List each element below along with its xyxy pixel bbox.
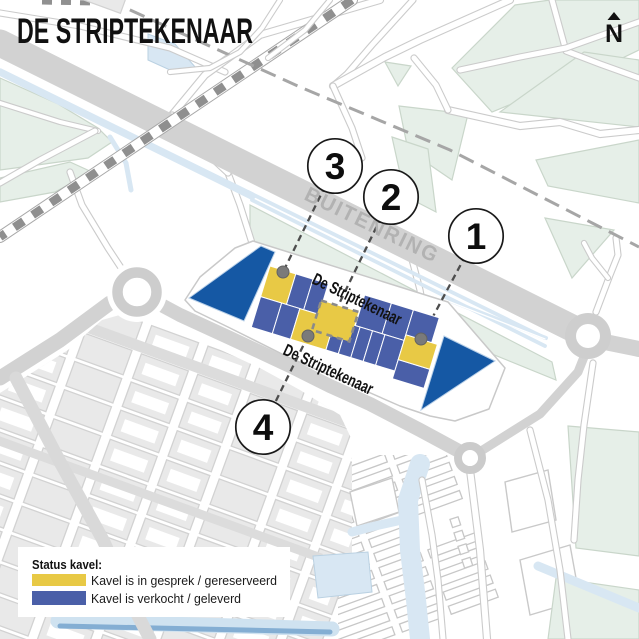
svg-text:1: 1 xyxy=(466,216,487,257)
svg-text:3: 3 xyxy=(325,146,346,187)
svg-text:Kavel is verkocht / geleverd: Kavel is verkocht / geleverd xyxy=(91,591,241,606)
svg-text:Kavel is in gesprek / gereserv: Kavel is in gesprek / gereserveerd xyxy=(91,573,277,588)
svg-text:DE STRIPTEKENAAR: DE STRIPTEKENAAR xyxy=(17,12,253,51)
svg-text:N: N xyxy=(605,20,623,48)
svg-text:Status kavel:: Status kavel: xyxy=(32,557,102,572)
svg-text:4: 4 xyxy=(253,407,274,448)
svg-text:2: 2 xyxy=(381,177,402,218)
